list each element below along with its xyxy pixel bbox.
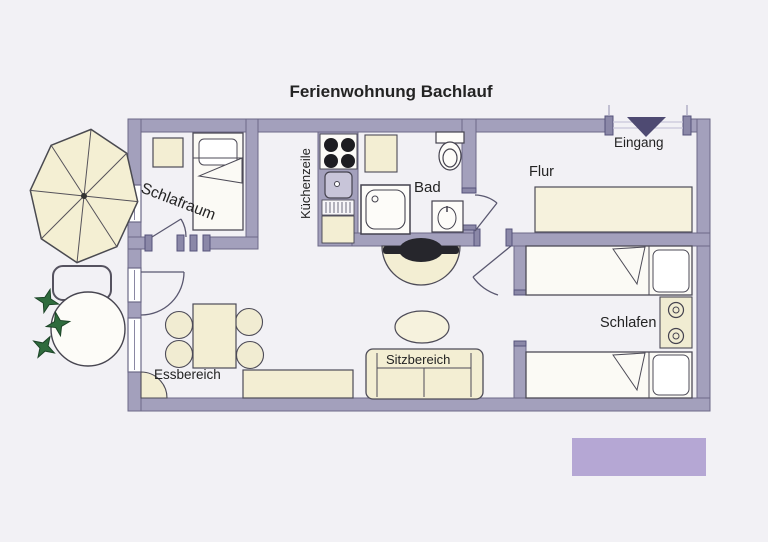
wall-schlafen-left-bottom [514, 346, 526, 398]
shower [361, 185, 410, 234]
dresser [153, 138, 183, 167]
wall-right [697, 119, 710, 411]
chair [237, 342, 264, 369]
jamb [203, 235, 210, 251]
parasol [23, 124, 144, 269]
room-flur [535, 187, 692, 232]
wall-flur-bottom [512, 233, 710, 246]
label-sitzbereich: Sitzbereich [386, 352, 450, 367]
page-title: Ferienwohnung Bachlauf [289, 82, 492, 101]
wall-schlafen-left-top [514, 246, 526, 294]
label-schlafen: Schlafen [600, 315, 656, 331]
wall-left-3 [128, 302, 141, 318]
jamb-schlafen-opening [514, 341, 526, 346]
label-flur: Flur [529, 164, 554, 180]
door-terrace [141, 272, 184, 315]
chair [166, 341, 193, 368]
door-flur-living [473, 246, 511, 295]
bed-schlafen-top [526, 246, 692, 295]
wall-schlafraum-right [246, 119, 258, 249]
washbasin [432, 201, 463, 232]
wall-bottom [128, 398, 710, 411]
door-schlafraum [152, 219, 186, 237]
pillow [199, 139, 237, 165]
floor-plan: Ferienwohnung Bachlauf [0, 0, 768, 542]
wall-bad-right-top [462, 119, 476, 192]
sideboard [243, 370, 353, 398]
purple-watermark-block [572, 438, 706, 476]
jamb-flur-door [506, 229, 512, 246]
wall-schlafraum-bottom-a [128, 237, 145, 249]
bath-shelf [365, 135, 397, 172]
kitchen-cabinet [322, 216, 354, 243]
jamb-entrance-left [605, 116, 613, 135]
jamb-entrance-right [683, 116, 691, 135]
tv-icon [399, 238, 443, 262]
chair [236, 309, 263, 336]
jamb-flur-door [474, 229, 480, 246]
label-kuechenzeile: Küchenzeile [298, 148, 313, 219]
kitchen-units [320, 134, 357, 243]
toilet [436, 132, 464, 170]
label-essbereich: Essbereich [154, 367, 221, 382]
wall-left-4 [128, 372, 141, 411]
jamb-schlafen-opening [514, 290, 526, 295]
terrace-table [51, 292, 125, 366]
label-eingang: Eingang [614, 135, 664, 150]
entrance-arrow-icon [627, 117, 666, 137]
drainboard [322, 200, 354, 215]
room-bad [361, 132, 464, 234]
wall-schlafraum-bottom-b [210, 237, 258, 249]
terrace [23, 124, 144, 366]
jamb-bad-door [462, 188, 476, 193]
chair [166, 312, 193, 339]
pillow [653, 355, 689, 395]
nightstand [660, 297, 692, 348]
jamb [145, 235, 152, 251]
dining-table [193, 304, 236, 368]
jamb [190, 235, 197, 251]
jamb-bad-door [462, 225, 476, 230]
door-bad [475, 195, 497, 231]
window-living-2 [128, 318, 141, 372]
bed-schlafen-bottom [526, 352, 692, 398]
window-living-1 [128, 268, 141, 302]
label-bad: Bad [414, 179, 441, 196]
wardrobe [535, 187, 692, 232]
pillow [653, 250, 689, 292]
coffee-table [395, 311, 449, 343]
jamb [177, 235, 184, 251]
kitchen-sink [325, 172, 352, 198]
wall-top-left [128, 119, 612, 132]
dining-set [166, 304, 264, 369]
